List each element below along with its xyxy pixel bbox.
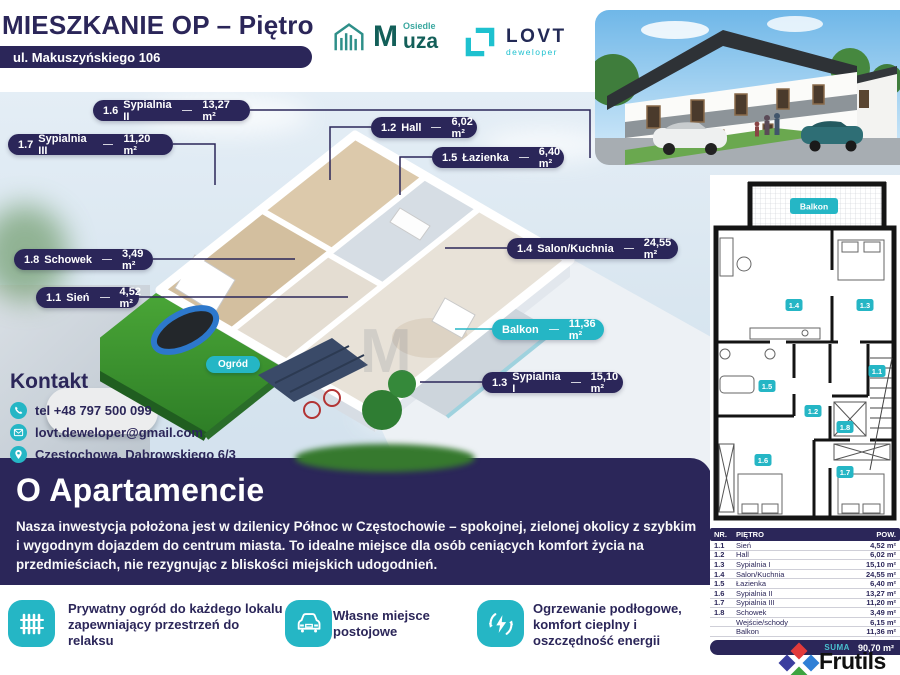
callout-lazienka: 1.5Łazienka6,40 m²	[432, 147, 564, 168]
svg-text:1.1: 1.1	[872, 367, 882, 376]
floorplan-2d: Balkon	[710, 178, 900, 526]
parking-feature-text: Własne miejsce postojowe	[333, 608, 453, 640]
svg-text:1.8: 1.8	[840, 423, 850, 432]
frutils-diamonds-icon	[782, 646, 816, 675]
bicycle	[304, 402, 320, 418]
table-row: 1.7Sypialnia III11,20 m²	[710, 599, 900, 609]
address-pill: ul. Makuszyńskiego 106	[0, 46, 312, 68]
kontakt-block: Kontakt tel +48 797 500 099 lovt.dewelop…	[10, 370, 236, 468]
phone-icon	[10, 402, 27, 419]
callout-sypialnia3: 1.7Sypialnia III11,20 m²	[8, 134, 173, 155]
energy-icon	[486, 609, 516, 639]
svg-text:1.6: 1.6	[758, 456, 768, 465]
envelope-icon	[10, 424, 27, 441]
car-icon	[294, 609, 324, 639]
kontakt-address: Częstochowa, Dąbrowskiego 6/3	[10, 446, 236, 463]
svg-text:1.2: 1.2	[808, 407, 818, 416]
page-title: MIESZKANIE OP – Piętro	[2, 10, 314, 41]
svg-text:1.3: 1.3	[860, 301, 870, 310]
hedge-overlap	[295, 444, 475, 472]
estate-photo-illustration	[595, 10, 900, 165]
kontakt-phone: tel +48 797 500 099	[10, 402, 236, 419]
svg-text:1.4: 1.4	[789, 301, 800, 310]
table-row: 1.1Sień4,52 m²	[710, 541, 900, 551]
about-body: Nasza inwestycja położona jest w dzileni…	[16, 517, 698, 574]
callout-balkon: Balkon11,36 m²	[492, 319, 604, 340]
parking-feature-icon	[285, 600, 332, 647]
garden-feature-text: Prywatny ogród do każdego lokalu zapewni…	[68, 601, 286, 649]
table-row: 1.6Sypialnia II13,27 m²	[710, 589, 900, 599]
heating-feature-text: Ogrzewanie podłogowe, komfort cieplny i …	[533, 601, 713, 649]
table-row: 1.4Salon/Kuchnia24,55 m²	[710, 570, 900, 580]
callout-sien: 1.1Sień4,52 m²	[36, 287, 139, 308]
callout-hall: 1.2Hall6,02 m²	[371, 117, 477, 138]
table-row: 1.3Sypialnia I15,10 m²	[710, 560, 900, 570]
kontakt-email: lovt.deweloper@gmail.com	[10, 424, 236, 441]
callout-salon-kuchnia: 1.4Salon/Kuchnia24,55 m²	[507, 238, 678, 259]
fence-icon	[18, 610, 46, 638]
svg-text:1.7: 1.7	[840, 468, 850, 477]
lovt-logo: LOVT deweloper	[462, 24, 567, 60]
table-row: Balkon11,36 m²	[710, 627, 900, 637]
about-heading: O Apartamencie	[16, 472, 712, 509]
lovt-bracket-icon	[462, 24, 498, 60]
watermark: M	[360, 316, 416, 387]
callout-sypialnia1: 1.3Sypialnia I15,10 m²	[482, 372, 623, 393]
about-section: O Apartamencie Nasza inwestycja położona…	[0, 458, 712, 585]
muza-house-icon	[330, 20, 368, 54]
table-row: 1.2Hall6,02 m²	[710, 551, 900, 561]
muza-logo: M Osiedle uza	[330, 20, 438, 54]
table-row: 1.5Łazienka6,40 m²	[710, 579, 900, 589]
kontakt-heading: Kontakt	[10, 370, 236, 394]
table-row: 1.8Schowek3,49 m²	[710, 608, 900, 618]
callout-sypialnia2: 1.6Sypialnia II13,27 m²	[93, 100, 250, 121]
table-row: Wejście/schody6,15 m²	[710, 618, 900, 628]
svg-text:Balkon: Balkon	[800, 202, 828, 212]
location-pin-icon	[10, 446, 27, 463]
estate-photo	[595, 10, 900, 165]
table-header: NR. PIĘTRO POW.	[710, 528, 900, 541]
heating-feature-icon	[477, 600, 524, 647]
garden-feature-icon	[8, 600, 55, 647]
callout-schowek: 1.8Schowek3,49 m²	[14, 249, 153, 270]
svg-text:1.5: 1.5	[762, 382, 772, 391]
flyer-page: M O Apartamencie Nasza inwestycja położo…	[0, 0, 900, 675]
frutils-logo: Frutils	[782, 646, 886, 675]
areas-table: NR. PIĘTRO POW. 1.1Sień4,52 m² 1.2Hall6,…	[710, 528, 900, 637]
